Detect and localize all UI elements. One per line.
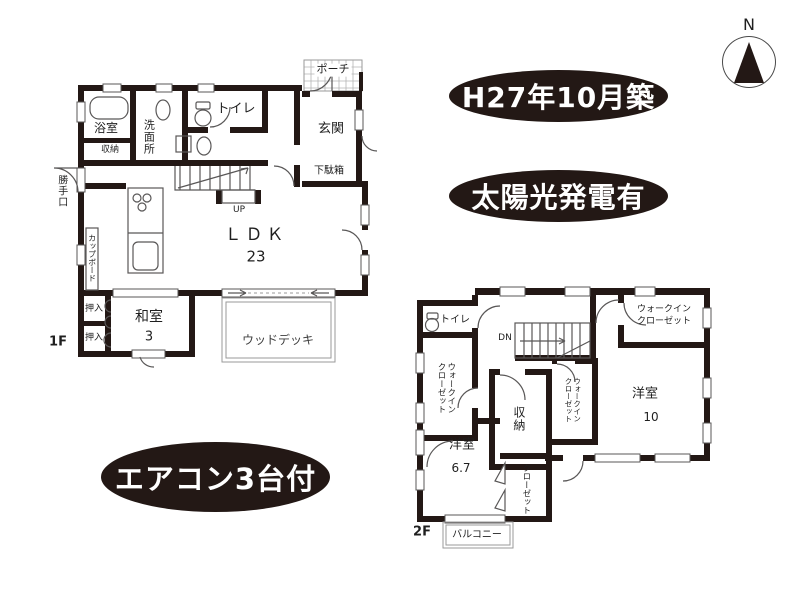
floor1-plan: 浴室 洗面所 トイレ 収納 ポーチ 玄関 下駄箱 UP ＬＤＫ 23 カップボー… <box>48 50 380 368</box>
sink-icon <box>133 242 158 270</box>
solar-power-badge: 太陽光発電有 <box>449 170 668 222</box>
cupboard-label: カップボード <box>87 234 96 282</box>
toilet1f-label: トイレ <box>216 103 255 118</box>
toilet2f-label: トイレ <box>440 314 470 326</box>
wood-deck-outline <box>222 290 335 362</box>
stairs-up-label: UP <box>233 205 245 215</box>
washroom-label: 洗面所 <box>142 119 155 155</box>
shoe-cabinet-label: 下駄箱 <box>314 165 344 177</box>
floor1-drawing <box>48 50 380 368</box>
floor-plan-page: 浴室 洗面所 トイレ 収納 ポーチ 玄関 下駄箱 UP ＬＤＫ 23 カップボー… <box>0 0 800 600</box>
western-room67-label: 洋室 <box>449 439 475 454</box>
oshiire1-label: 押入 <box>85 304 103 314</box>
floor1-label: 1F <box>49 336 67 351</box>
bath-label: 浴室 <box>94 122 118 136</box>
japanese-room-label: 和室 <box>135 309 163 325</box>
porch-label: ポーチ <box>315 64 352 77</box>
storage2f-label: 収納 <box>511 406 525 432</box>
wic-middle-label: ウォークイン クローゼット <box>563 378 580 423</box>
entrance-label: 玄関 <box>318 123 344 138</box>
aircon-badge: エアコン3台付 <box>101 442 330 512</box>
floor2-plan: トイレ ウォークイン クローゼット DN 収納 ウォークイン クローゼット ウォ… <box>405 283 720 568</box>
closet-bifold-doors <box>495 463 505 511</box>
western-room10-size-label: 10 <box>643 411 658 425</box>
stairs-down-label: DN <box>498 333 512 343</box>
stove-icon <box>133 194 141 202</box>
western-room10-label: 洋室 <box>632 388 658 403</box>
toilet-icon-1f <box>195 102 211 126</box>
ldk-label: ＬＤＫ <box>225 226 288 246</box>
compass-ring <box>722 36 776 88</box>
corridor-fixtures <box>176 136 211 155</box>
washbasin-icon <box>156 100 170 120</box>
back-door-label: 勝手口 <box>55 175 67 208</box>
oshiire2-label: 押入 <box>85 333 103 343</box>
compass-north-label: N <box>719 17 779 33</box>
western-room67-size-label: 6.7 <box>451 462 470 476</box>
wood-deck-label: ウッドデッキ <box>242 334 314 348</box>
wic-top-right-label: ウォークイン クローゼット <box>637 304 691 327</box>
built-date-badge: H27年10月築 <box>449 70 668 122</box>
stairs-down-2f <box>515 323 590 358</box>
ldk-size-label: 23 <box>246 248 265 265</box>
wic-left-label: ウォークイン クローゼット <box>435 363 455 414</box>
compass-needle-icon <box>734 42 764 83</box>
kitchen-counter <box>128 188 163 273</box>
balcony-label: バルコニー <box>452 529 502 541</box>
bathtub-icon <box>90 97 128 119</box>
stairs-up-1f <box>175 166 255 203</box>
storage1f-label: 収納 <box>101 145 119 155</box>
compass: N <box>719 17 779 88</box>
japanese-room-size-label: 3 <box>145 331 153 346</box>
toilet-icon-2f <box>426 313 439 332</box>
floor2-label: 2F <box>413 526 431 541</box>
closet-label: クローゼット <box>520 464 530 515</box>
